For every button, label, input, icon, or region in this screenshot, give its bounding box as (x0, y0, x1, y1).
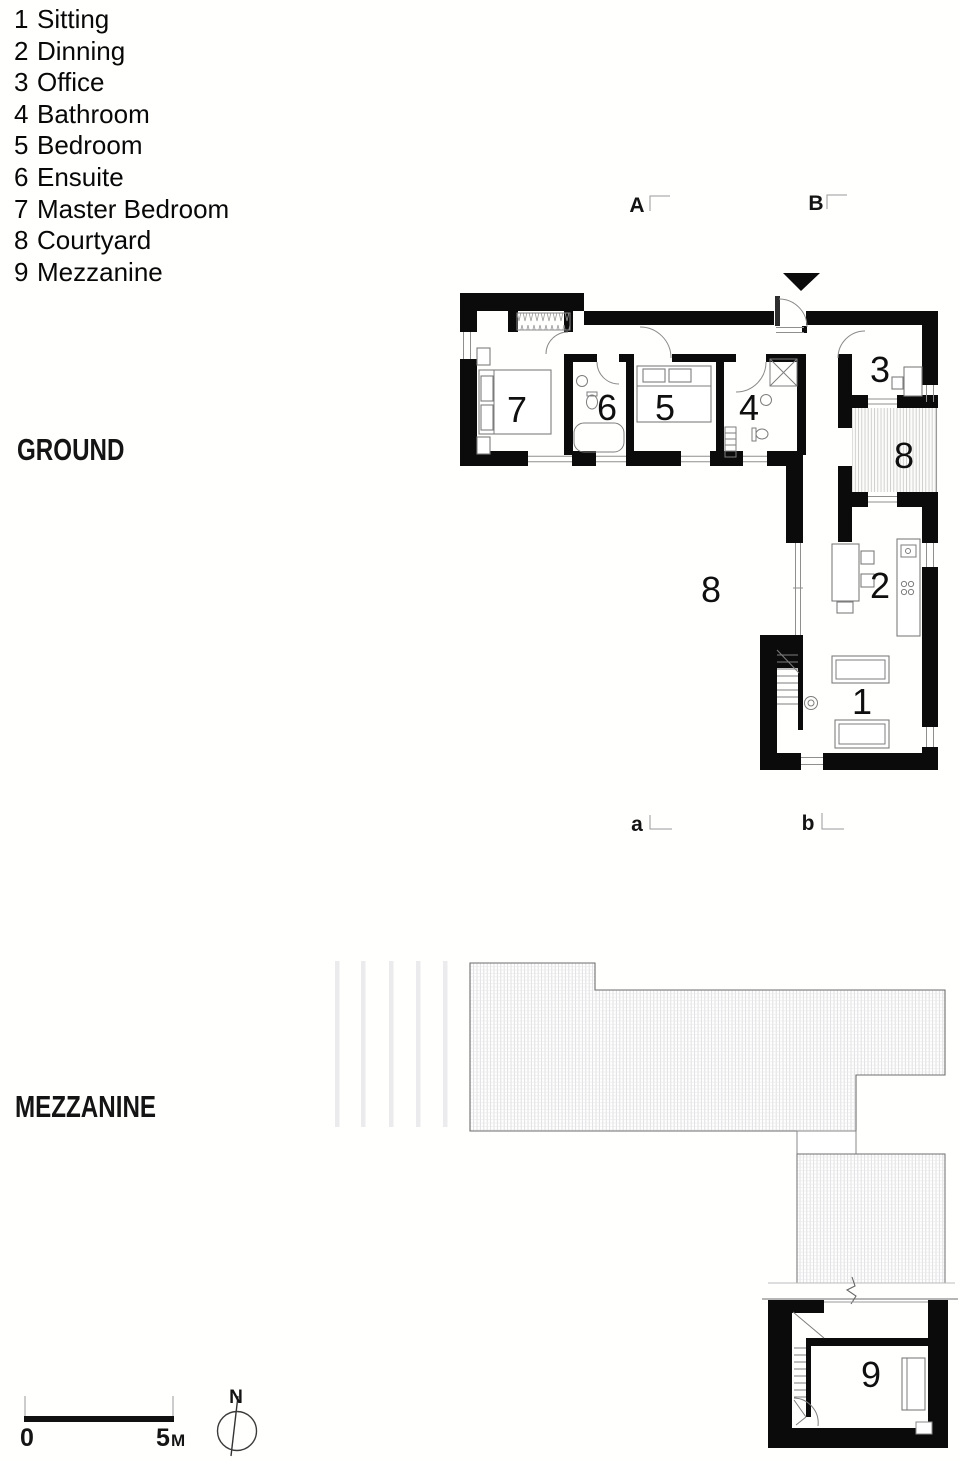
legend-item: 1Sitting (14, 4, 229, 36)
north-label: N (229, 1387, 243, 1408)
kitchen-counter (897, 539, 920, 636)
room-label-mezzanine: 9 (861, 1354, 881, 1395)
entrance-door-leaf (775, 296, 780, 326)
pergola-stripes (335, 961, 448, 1127)
legend-item: 7Master Bedroom (14, 194, 229, 226)
floor-plan-sheet: 1Sitting 2Dinning 3Office 4Bathroom 5Bed… (0, 0, 960, 1461)
north-compass: N (218, 1387, 257, 1456)
legend-number: 5 (14, 130, 37, 162)
legend-label: Dinning (37, 36, 125, 66)
room-label-bedroom: 5 (655, 387, 675, 428)
legend-item: 9Mezzanine (14, 257, 229, 289)
section-marker-A: A (629, 194, 670, 217)
section-bracket-icon (650, 196, 670, 211)
room-label-courtyard-deck: 8 (894, 435, 914, 476)
room-label-bathroom: 4 (739, 387, 759, 428)
legend-label: Sitting (37, 4, 109, 34)
scale-length-label: 5 (156, 1424, 170, 1452)
section-marker-b: b (802, 812, 844, 835)
wardrobe (517, 313, 570, 330)
legend-item: 2Dinning (14, 36, 229, 68)
mezzanine-room: 9 (768, 1300, 948, 1448)
room-label-courtyard: 8 (701, 569, 721, 610)
ground-floor-plan: A B (440, 180, 960, 850)
scale-bar: 0 5 M (20, 1396, 185, 1452)
section-bracket-icon (827, 195, 847, 209)
section-letter-b-lower: b (802, 812, 815, 835)
legend-number: 7 (14, 194, 37, 226)
entrance-arrow-icon (783, 273, 820, 291)
legend-number: 1 (14, 4, 37, 36)
roof-step (797, 1131, 856, 1154)
room-label-sitting: 1 (852, 681, 872, 722)
room-label-ensuite: 6 (597, 387, 617, 428)
legend-number: 4 (14, 99, 37, 131)
legend-label: Master Bedroom (37, 194, 229, 224)
section-letter-b-upper: B (808, 192, 823, 215)
legend-item: 4Bathroom (14, 99, 229, 131)
floor-label-mezzanine: MEZZANINE (15, 1089, 156, 1125)
legend-number: 8 (14, 225, 37, 257)
office-desk (892, 367, 922, 396)
mezzanine-plan: 9 (320, 940, 960, 1461)
room-label-dinning: 2 (870, 565, 890, 606)
section-bracket-icon (822, 813, 844, 829)
legend-label: Mezzanine (37, 257, 163, 287)
legend-item: 3Office (14, 67, 229, 99)
roof-hatch-upper (470, 963, 945, 1131)
legend-item: 8Courtyard (14, 225, 229, 257)
scale-and-compass: 0 5 M N (0, 1360, 300, 1461)
scale-zero-label: 0 (20, 1424, 33, 1452)
roof-hatch-lower (797, 1154, 945, 1283)
legend-number: 3 (14, 67, 37, 99)
section-marker-B: B (808, 192, 847, 215)
legend-label: Office (37, 67, 104, 97)
compass-circle-icon (218, 1412, 257, 1451)
legend-number: 6 (14, 162, 37, 194)
legend-item: 6Ensuite (14, 162, 229, 194)
wall-niche (916, 1422, 932, 1434)
floor-label-ground: GROUND (17, 432, 124, 468)
section-marker-a: a (631, 813, 672, 836)
dining-table (832, 544, 874, 613)
room-legend: 1Sitting 2Dinning 3Office 4Bathroom 5Bed… (14, 4, 229, 288)
legend-item: 5Bedroom (14, 130, 229, 162)
legend-label: Bathroom (37, 99, 150, 129)
room-label-office: 3 (870, 349, 890, 390)
bathroom-fixtures (725, 359, 797, 457)
legend-label: Courtyard (37, 225, 151, 255)
section-letter-a-lower: a (631, 813, 643, 836)
legend-number: 2 (14, 36, 37, 68)
scale-unit-label: M (171, 1431, 185, 1450)
section-letter-a-upper: A (629, 194, 644, 217)
wood-stove (805, 697, 818, 710)
legend-number: 9 (14, 257, 37, 289)
room-label-master-bedroom: 7 (507, 389, 527, 430)
legend-label: Bedroom (37, 130, 143, 160)
bed-mezzanine (902, 1358, 925, 1410)
legend-label: Ensuite (37, 162, 124, 192)
section-bracket-icon (650, 815, 672, 829)
